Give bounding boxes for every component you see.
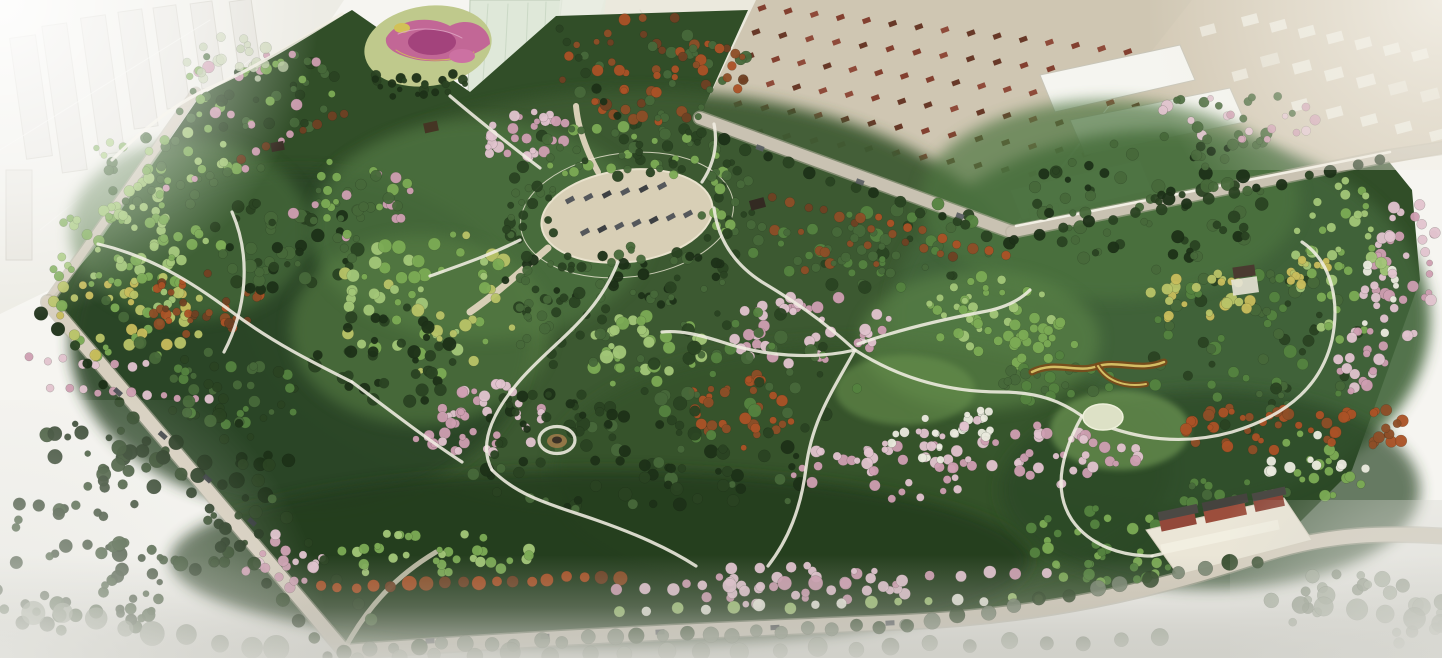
park-masterplan-rendering xyxy=(0,0,1442,658)
park-aerial-rendering-canvas xyxy=(0,0,1442,658)
